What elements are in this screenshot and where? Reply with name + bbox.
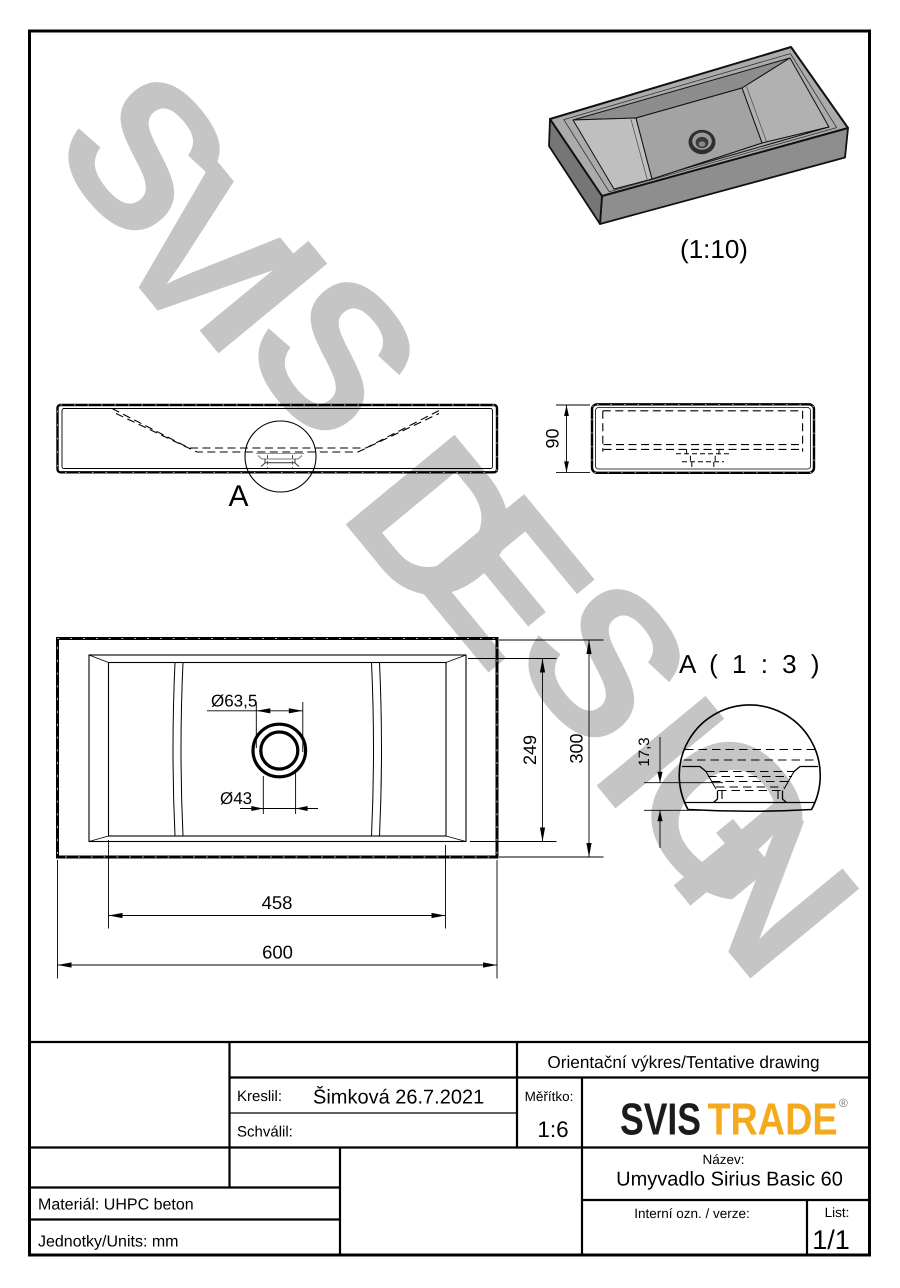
svg-text:90: 90 <box>543 428 563 448</box>
svg-text:Umyvadlo Sirius Basic 60: Umyvadlo Sirius Basic 60 <box>616 1169 843 1191</box>
svg-text:1/1: 1/1 <box>812 1225 850 1255</box>
svg-text:600: 600 <box>262 942 293 963</box>
svg-text:Měřítko:: Měřítko: <box>525 1089 574 1104</box>
svg-text:A: A <box>228 480 248 513</box>
svg-text:(1:10): (1:10) <box>680 234 748 264</box>
svg-text:Ø43: Ø43 <box>220 789 252 808</box>
svg-text:Šimková 26.7.2021: Šimková 26.7.2021 <box>313 1086 484 1109</box>
svg-text:458: 458 <box>262 892 293 913</box>
svg-text:Schválil:: Schválil: <box>237 1124 293 1141</box>
svg-text:Materiál: UHPC beton: Materiál: UHPC beton <box>38 1197 194 1214</box>
svg-text:Interní ozn. / verze:: Interní ozn. / verze: <box>634 1206 750 1221</box>
svg-text:Jednotky/Units: mm: Jednotky/Units: mm <box>38 1234 178 1251</box>
svg-text:Název:: Název: <box>702 1152 744 1167</box>
svg-text:SVIS: SVIS <box>620 1094 701 1145</box>
svg-text:A ( 1 : 3 ): A ( 1 : 3 ) <box>679 649 823 679</box>
svg-text:List:: List: <box>825 1205 850 1220</box>
svg-text:®: ® <box>839 1096 848 1110</box>
svg-text:300: 300 <box>567 733 587 763</box>
svg-text:249: 249 <box>520 735 540 765</box>
svg-text:TRADE: TRADE <box>708 1094 838 1145</box>
svg-text:17,3: 17,3 <box>636 737 653 766</box>
svg-text:Kreslil:: Kreslil: <box>237 1088 282 1105</box>
svg-text:Ø63,5: Ø63,5 <box>211 692 257 711</box>
svg-text:1:6: 1:6 <box>537 1117 568 1142</box>
svg-text:Orientační výkres/Tentative dr: Orientační výkres/Tentative drawing <box>547 1052 819 1072</box>
